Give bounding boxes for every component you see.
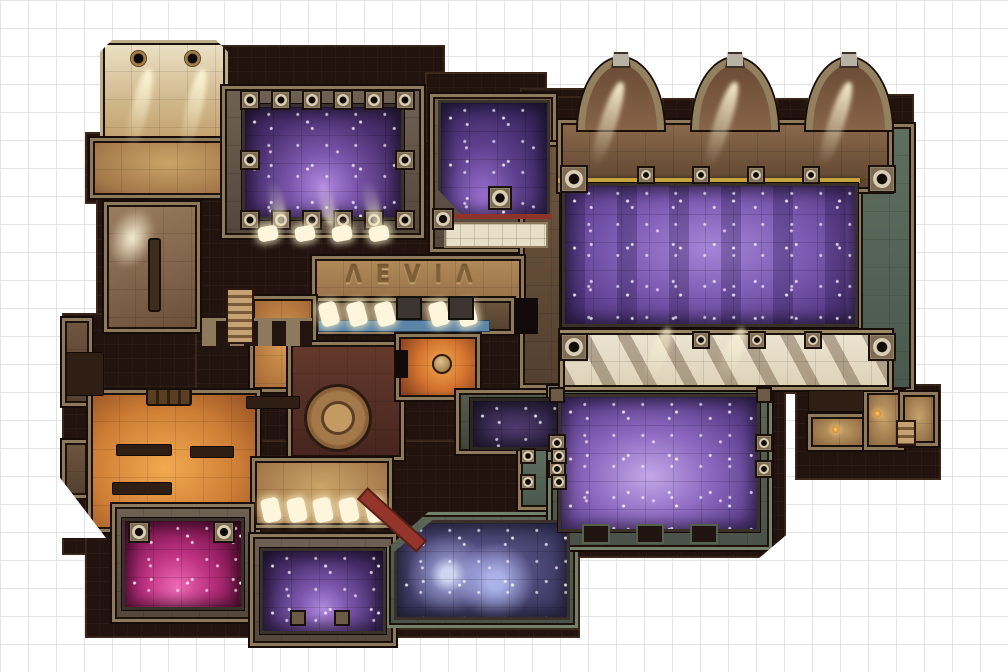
chapel-porthole-1 [130, 50, 147, 67]
band-block-2 [448, 296, 474, 320]
keystone-2 [725, 52, 745, 68]
barrel-shelf [146, 388, 192, 406]
hall-pillar-s-small-2 [748, 331, 766, 349]
hall-pillar-ne-small-4 [802, 166, 820, 184]
hall-pillar-s-small-1 [692, 331, 710, 349]
np2-pillar-1 [488, 186, 512, 210]
annex-storage [808, 390, 864, 412]
chapel-porthole-2 [184, 50, 201, 67]
bench-3 [112, 482, 172, 495]
teal-ring-2 [551, 448, 567, 464]
np-pillar-w [240, 150, 260, 170]
hall-pillar-ne-small-3 [747, 166, 765, 184]
crenel-ring-e2 [755, 460, 773, 478]
hall-pillar-s-small-3 [804, 331, 822, 349]
hall-pillar-ne [868, 165, 896, 193]
pink-pillar-1 [128, 521, 150, 543]
crenellated-wall [202, 318, 312, 346]
pool-crenel [558, 394, 760, 532]
annex-candle-2 [874, 410, 881, 417]
np-pillar-b1 [240, 210, 260, 230]
dais-center [321, 401, 355, 435]
forge-door [396, 350, 408, 378]
band-block-1 [396, 296, 422, 320]
gallery-table [148, 238, 161, 312]
np2-pillar-2 [432, 208, 454, 230]
pool-south [260, 548, 386, 634]
annex-candle-1 [832, 426, 839, 433]
sp-block-2 [334, 610, 350, 626]
closet-crate [66, 352, 104, 396]
forge-anvil [432, 354, 452, 374]
stairs-central [226, 288, 254, 344]
annex-ladder [896, 420, 916, 446]
hall-pillar-ne-small-2 [692, 166, 710, 184]
np-pillar-e [395, 150, 415, 170]
central-doorway [516, 298, 538, 334]
hall-pillar-ne-small-1 [637, 166, 655, 184]
np-pillar-t6 [395, 90, 415, 110]
crenel-ring-e1 [755, 434, 773, 452]
teal-ring-4 [551, 474, 567, 490]
pool-north2-tiles [444, 222, 548, 248]
np-pillar-t4 [333, 90, 353, 110]
crenel-tooth-3 [690, 524, 718, 544]
battle-map [0, 0, 1008, 672]
teal-ring-3 [520, 474, 536, 490]
bench-1 [116, 444, 172, 456]
battle-map-page: ΛEVIΛ [0, 0, 1008, 672]
bench-2 [190, 446, 234, 458]
np-pillar-t1 [240, 90, 260, 110]
np-pillar-t2 [271, 90, 291, 110]
keystone-3 [839, 52, 859, 68]
np-pillar-t5 [364, 90, 384, 110]
carved-inscription: ΛEVIΛ [318, 261, 514, 296]
np-pillar-b6 [395, 210, 415, 230]
crenel-corner-2 [756, 387, 772, 403]
np-pillar-t3 [302, 90, 322, 110]
bench-4 [246, 396, 300, 409]
grand-pool [562, 183, 858, 327]
teal-ring-1 [520, 448, 536, 464]
crenel-corner-1 [549, 387, 565, 403]
pink-pillar-2 [213, 521, 235, 543]
crenel-tooth-2 [636, 524, 664, 544]
hall-pillar-se [868, 333, 896, 361]
keystone-1 [611, 52, 631, 68]
crenel-tooth-1 [582, 524, 610, 544]
annex-room-a [808, 414, 868, 450]
room-chapel [100, 40, 228, 152]
hall-pillar-sw [560, 333, 588, 361]
sp-block-1 [290, 610, 306, 626]
hall-pillar-nw [560, 165, 588, 193]
pool-north2-red-trim [438, 214, 552, 219]
